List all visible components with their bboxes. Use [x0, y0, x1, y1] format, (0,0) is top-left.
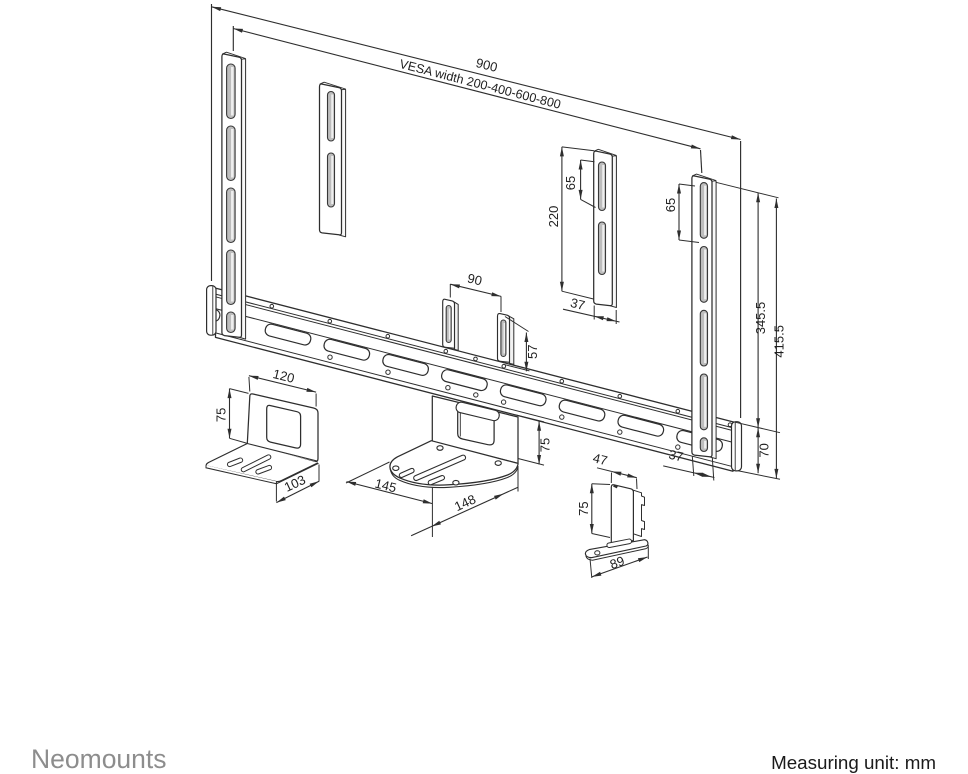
svg-text:65: 65	[563, 176, 578, 190]
svg-text:220: 220	[546, 206, 561, 228]
svg-text:75: 75	[576, 501, 591, 515]
svg-text:75: 75	[538, 438, 553, 452]
svg-text:57: 57	[525, 345, 540, 359]
svg-text:65: 65	[663, 198, 678, 212]
svg-text:Measuring unit: mm: Measuring unit: mm	[771, 752, 936, 773]
svg-text:415.5: 415.5	[772, 325, 787, 358]
svg-text:345.5: 345.5	[753, 302, 768, 335]
svg-text:Neomounts: Neomounts	[31, 744, 167, 774]
svg-text:75: 75	[214, 408, 229, 422]
svg-text:70: 70	[757, 443, 772, 457]
